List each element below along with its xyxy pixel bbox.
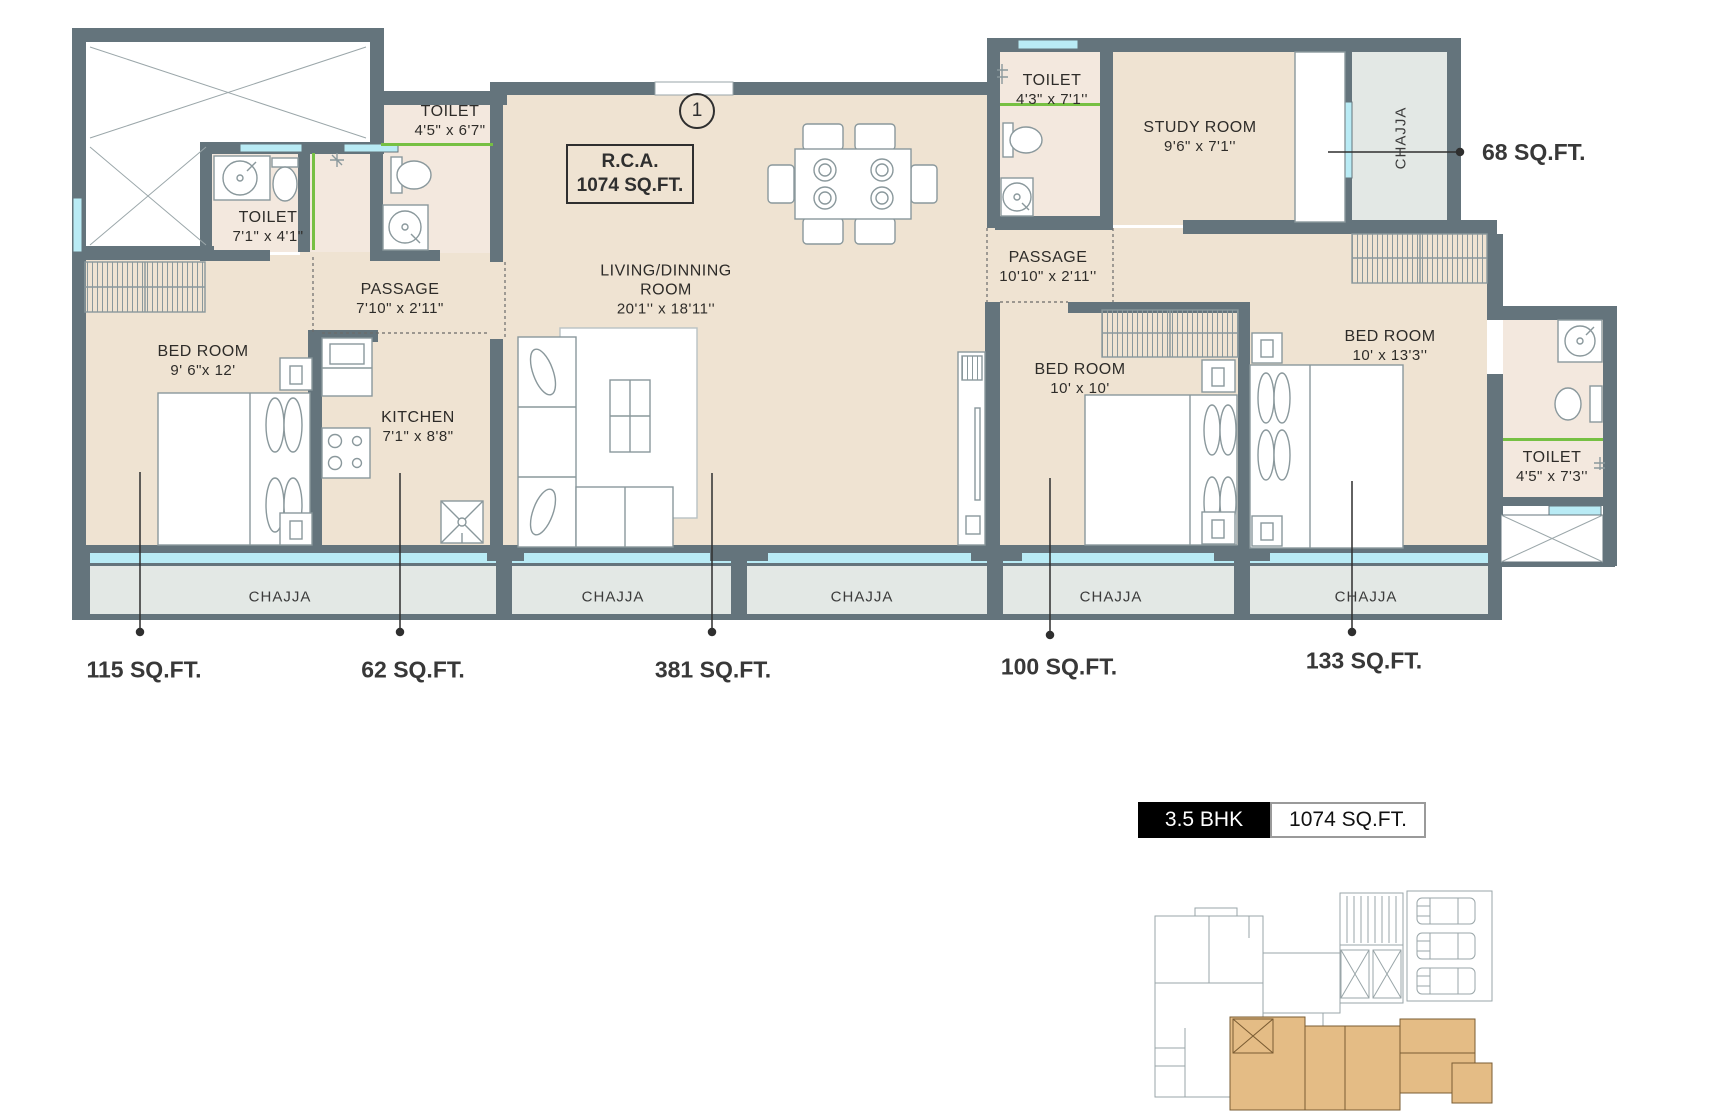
chajja-label: CHAJJA [582,589,645,606]
wc-icon [272,158,298,201]
chajja-label: CHAJJA [1080,589,1143,606]
room-name: TOILET [232,208,303,227]
room-name: TOILET [414,102,485,121]
room-name-line2: ROOM [600,281,731,300]
chajja-label: CHAJJA [1335,589,1398,606]
callout-bedroom-right: 133 SQ.FT. [1306,648,1422,675]
label-toilet-b: TOILET 4'5" x 6'7" [414,102,485,140]
room-name: PASSAGE [999,248,1096,267]
rca-area: 1074 SQ.FT. [577,174,684,198]
room-name: BED ROOM [1344,327,1435,346]
label-bedroom-right: BED ROOM 10' x 13'3'' [1344,327,1435,365]
room-name: BED ROOM [1034,360,1125,379]
room-name: STUDY ROOM [1143,118,1256,137]
bhk-badge: 3.5 BHK [1138,802,1270,838]
callout-chajja-top: 68 SQ.FT. [1482,139,1586,166]
room-dims: 10' x 13'3'' [1344,346,1435,365]
chajja-label: CHAJJA [249,589,312,606]
room-dims: 4'5" x 7'3'' [1516,467,1588,486]
room-dims: 10' x 10' [1034,379,1125,398]
room-dims: 4'3" x 7'1'' [1016,90,1088,109]
chajja-label: CHAJJA [831,589,894,606]
stove-icon [322,428,370,478]
room-dims: 7'1" x 8'8" [381,427,455,446]
washbasin-icon [1558,320,1602,362]
room-dims: 9'6" x 7'1'' [1143,137,1256,156]
tv-unit-icon [958,352,985,545]
wardrobe-icon [1102,310,1238,357]
room-name: BED ROOM [157,342,248,361]
parking-icon [1407,891,1492,1001]
room-dims: 9' 6"x 12' [157,361,248,380]
car-icon [1417,898,1475,924]
chajja-band [72,545,1502,620]
unit-type-badge: 3.5 BHK 1074 SQ.FT. [1138,802,1426,838]
chajja-label-vertical: CHAJJA [1393,107,1410,170]
label-passage-left: PASSAGE 7'10" x 2'11" [356,280,444,318]
floorplan-svg [0,0,1729,1112]
floorplan-page: TOILET 7'1" x 4'1" TOILET 4'5" x 6'7" PA… [0,0,1729,1112]
unit-number-marker: 1 [679,93,715,129]
sink-icon [441,501,483,543]
callout-living: 381 SQ.FT. [655,657,771,684]
kitchen-counter-icon [322,338,372,396]
washbasin-icon [1001,178,1033,216]
label-living: LIVING/DINNING ROOM 20'1'' x 18'11'' [600,262,731,319]
room-name: TOILET [1516,448,1588,467]
key-plan [1155,891,1492,1110]
label-bedroom-left: BED ROOM 9' 6"x 12' [157,342,248,380]
label-toilet-d: TOILET 4'5" x 7'3'' [1516,448,1588,486]
room-dims: 10'10" x 2'11'' [999,267,1096,286]
room-dims: 20'1'' x 18'11'' [600,300,731,319]
room-dims: 4'5" x 6'7" [414,121,485,140]
wardrobe-icon [1352,234,1487,283]
coffee-table-icon [610,380,650,452]
callout-bedroom-left: 115 SQ.FT. [86,657,201,684]
washbasin-icon [214,156,270,200]
label-bedroom-mid: BED ROOM 10' x 10' [1034,360,1125,398]
callout-bedroom-mid: 100 SQ.FT. [1001,654,1117,681]
room-name: LIVING/DINNING [600,262,731,281]
label-toilet-a: TOILET 7'1" x 4'1" [232,208,303,246]
study-closet-icon [1295,52,1345,222]
x-window-icon [1501,515,1603,562]
car-icon [1417,968,1475,994]
room-name: PASSAGE [356,280,444,299]
bed-icon [1250,333,1403,548]
washbasin-icon [383,205,428,250]
wardrobe-icon [85,262,205,312]
label-kitchen: KITCHEN 7'1" x 8'8" [381,408,455,446]
label-toilet-c: TOILET 4'3" x 7'1'' [1016,71,1088,109]
area-badge: 1074 SQ.FT. [1270,802,1426,838]
room-name: KITCHEN [381,408,455,427]
rca-box: R.C.A. 1074 SQ.FT. [566,144,694,204]
room-dims: 7'10" x 2'11" [356,299,444,318]
callout-kitchen: 62 SQ.FT. [361,657,465,684]
room-dims: 7'1" x 4'1" [232,227,303,246]
room-name: TOILET [1016,71,1088,90]
unit-number: 1 [692,100,703,122]
label-study: STUDY ROOM 9'6" x 7'1'' [1143,118,1256,156]
car-icon [1417,933,1475,959]
label-passage-right: PASSAGE 10'10" x 2'11'' [999,248,1096,286]
key-plan-highlight [1230,1017,1492,1110]
stairs-icon [1340,893,1403,1003]
lift-icon [1341,950,1401,998]
rca-title: R.C.A. [602,150,659,174]
